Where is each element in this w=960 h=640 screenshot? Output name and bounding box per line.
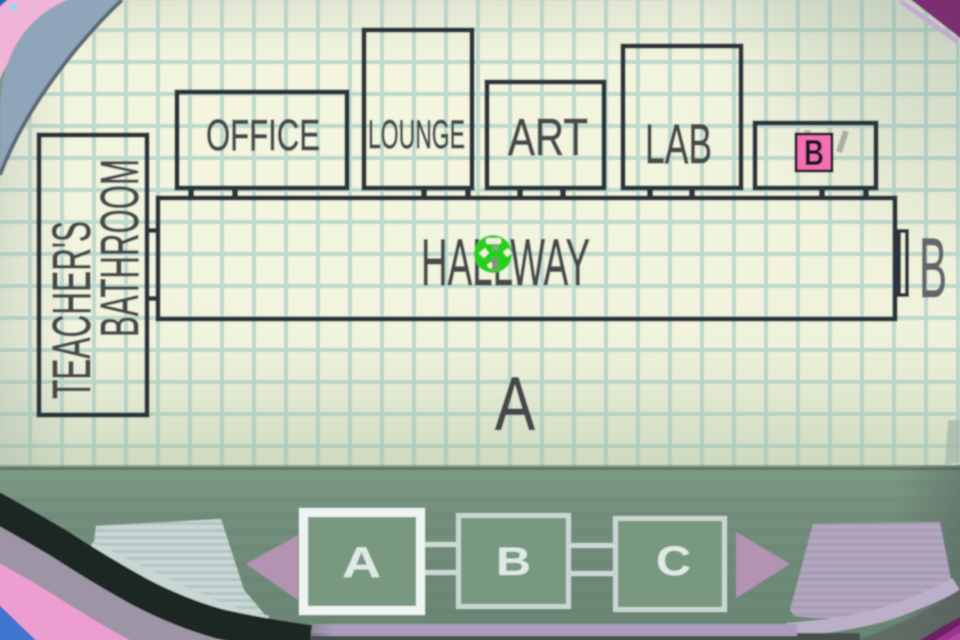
svg-text:LAB: LAB xyxy=(645,112,712,175)
svg-text:BATHROOM: BATHROOM xyxy=(90,159,150,337)
svg-text:LOUNGE: LOUNGE xyxy=(368,113,465,157)
svg-text:A: A xyxy=(342,538,381,587)
svg-text:B: B xyxy=(804,132,824,173)
svg-text:B: B xyxy=(496,540,531,584)
svg-text:C: C xyxy=(656,537,691,584)
svg-text:ART: ART xyxy=(508,109,588,167)
svg-text:B: B xyxy=(919,221,947,315)
svg-text:OFFICE: OFFICE xyxy=(206,111,320,160)
svg-text:A: A xyxy=(495,362,535,447)
